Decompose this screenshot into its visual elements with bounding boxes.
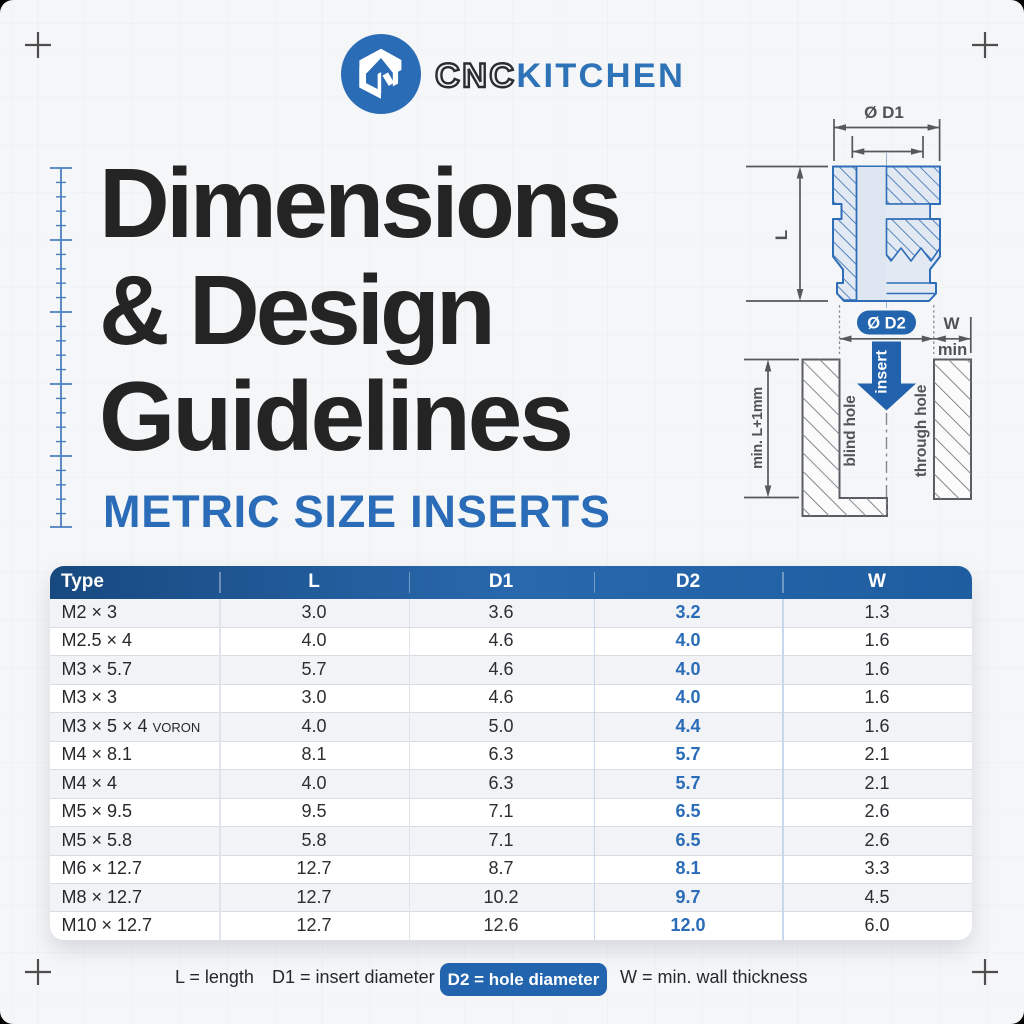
svg-text:W: W xyxy=(943,314,960,333)
svg-text:min. L+1mm: min. L+1mm xyxy=(750,387,766,469)
svg-text:Ø D1: Ø D1 xyxy=(864,103,904,122)
svg-text:L: L xyxy=(772,230,791,240)
svg-text:min: min xyxy=(938,341,967,359)
svg-text:through hole: through hole xyxy=(913,384,930,477)
svg-text:Ø D2: Ø D2 xyxy=(867,315,906,333)
svg-text:insert: insert xyxy=(874,350,891,394)
svg-text:blind hole: blind hole xyxy=(842,395,859,467)
